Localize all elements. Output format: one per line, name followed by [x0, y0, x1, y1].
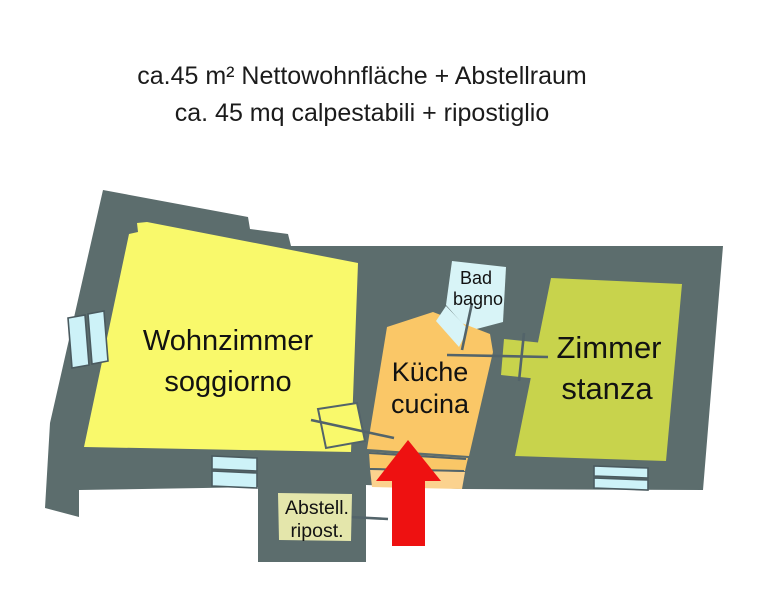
label-wohnzimmer-de: Wohnzimmer: [143, 325, 314, 357]
label-zimmer-de: Zimmer: [556, 330, 661, 365]
floor-plan-page: ca.45 m² Nettowohnfläche + Abstellraum c…: [0, 0, 762, 600]
label-kueche-it: cucina: [391, 389, 470, 419]
label-wohnzimmer-it: soggiorno: [164, 366, 291, 398]
label-zimmer-it: stanza: [561, 371, 653, 406]
label-kueche-de: Küche: [392, 357, 469, 387]
window-wohnzimmer-bottom-pane-1: [212, 456, 257, 471]
window-zimmer-bottom-pane-1: [594, 466, 648, 478]
window-wohnzimmer-bottom-pane-2: [212, 471, 257, 488]
window-left-pane-2: [88, 311, 108, 364]
window-zimmer-bottom-pane-2: [594, 478, 648, 490]
label-abstellraum-it: ripost.: [290, 520, 343, 542]
window-left-pane-1: [68, 315, 89, 368]
floor-plan: Wohnzimmer soggiorno Küche cucina Bad ba…: [0, 0, 762, 600]
label-abstellraum-de: Abstell.: [285, 497, 349, 519]
label-bad-it: bagno: [453, 289, 503, 309]
label-bad-de: Bad: [460, 268, 492, 288]
